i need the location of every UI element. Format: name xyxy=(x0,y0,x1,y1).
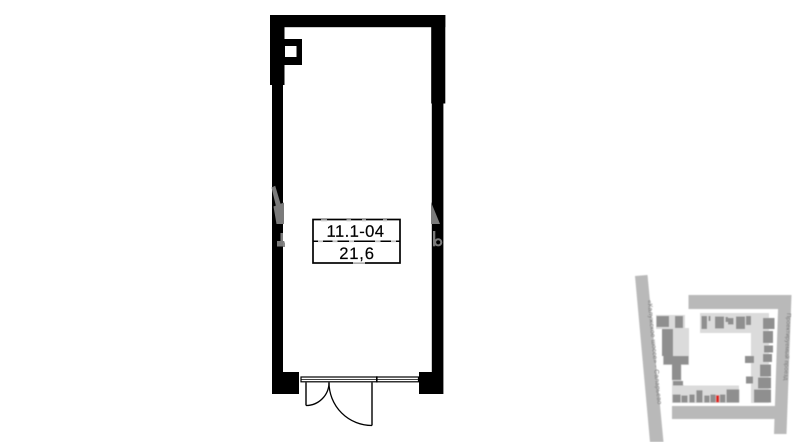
svg-text:11.1-04: 11.1-04 xyxy=(327,222,385,241)
svg-text:21,6: 21,6 xyxy=(339,244,375,263)
